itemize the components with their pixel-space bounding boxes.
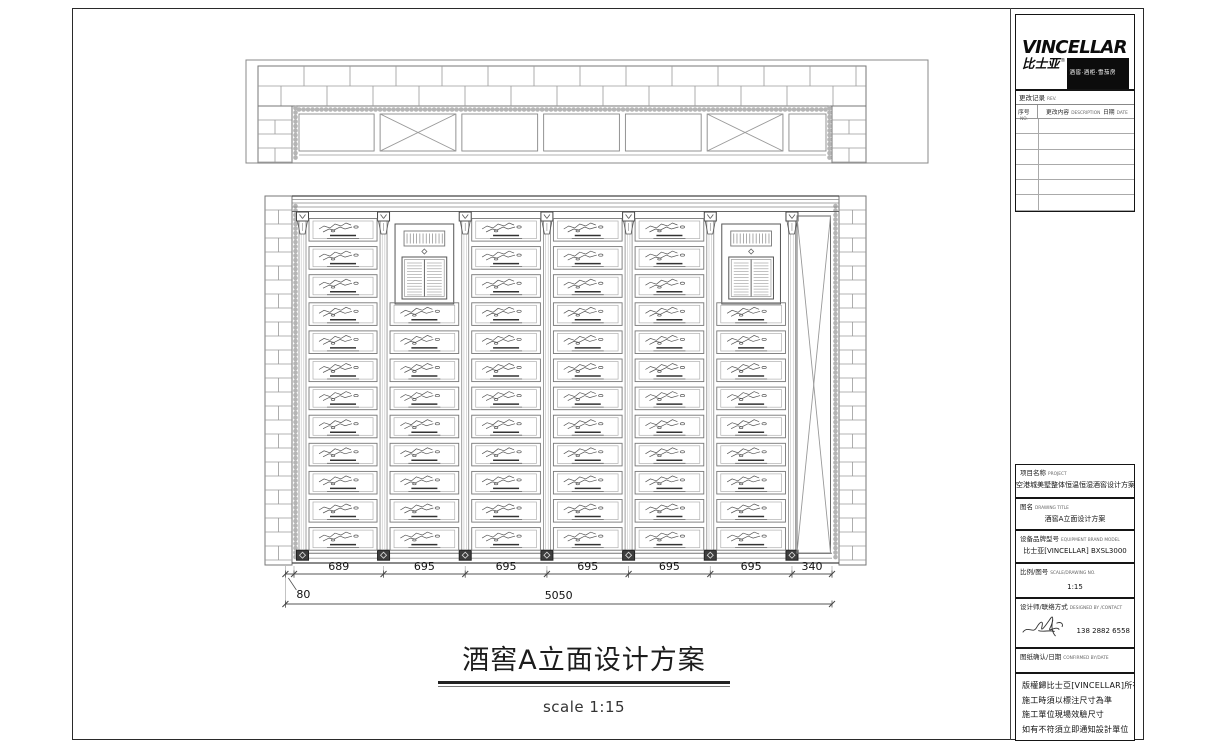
revision-col-description: 更改内容DESCRIPTION: [1038, 105, 1101, 118]
project-value: 空港城美墅整体恒温恒湿酒窖设计方案: [1016, 480, 1134, 490]
designer-box: 设计师/联络方式DESIGNED BY /CONTACT 138 2882 65…: [1015, 598, 1135, 648]
revision-empty-rows: [1016, 119, 1134, 211]
title-underline-thick: [438, 681, 730, 684]
scale-box: 比例/图号SCALE/DRAWING NO. 1:15: [1015, 563, 1135, 598]
revision-divider: [1038, 119, 1039, 211]
drawing-scale-text: scale 1:15: [438, 698, 730, 716]
designer-label: 设计师/联络方式DESIGNED BY /CONTACT: [1016, 599, 1134, 611]
project-label: 项目名称PROJECT: [1016, 465, 1134, 477]
brand-tagline-bar: 酒窖·酒柜·雪茄房 www.vincellar.com: [1067, 58, 1129, 90]
note-line: 施工時須以標注尺寸為準: [1022, 694, 1128, 709]
revision-row: [1016, 150, 1134, 165]
drawing-name-value: 酒窖A立面设计方案: [1016, 514, 1134, 524]
page-border: [72, 8, 1144, 740]
designer-signature: [1020, 611, 1077, 641]
scale-label: 比例/图号SCALE/DRAWING NO.: [1016, 564, 1134, 576]
equipment-value: 比士亚[VINCELLAR] BXSL3000: [1016, 546, 1134, 556]
revision-col-date: 日期DATE: [1101, 105, 1134, 118]
equipment-box: 设备品牌型号EQUIPMENT BRAND MODEL 比士亚[VINCELLA…: [1015, 530, 1135, 563]
note-line: 版權歸比士亞[VINCELLAR]所有: [1022, 679, 1128, 694]
confirm-label: 图纸确认/日期CONFIRMED BY/DATE: [1016, 649, 1134, 661]
scale-value: 1:15: [1016, 583, 1134, 591]
brand-tagline: 酒窖·酒柜·雪茄房: [1070, 70, 1117, 76]
revision-row: [1016, 180, 1134, 195]
project-name-box: 项目名称PROJECT 空港城美墅整体恒温恒湿酒窖设计方案: [1015, 464, 1135, 498]
title-block: VINCELLAR 比士亚 ® 酒窖·酒柜·雪茄房 www.vincellar.…: [1010, 8, 1146, 740]
drawing-title: 酒窖A立面设计方案 scale 1:15: [438, 644, 730, 716]
logo-box: VINCELLAR 比士亚 ® 酒窖·酒柜·雪茄房 www.vincellar.…: [1015, 14, 1135, 90]
designer-phone: 138 2882 6558: [1077, 627, 1130, 635]
brand-wordmark: VINCELLAR: [1022, 39, 1129, 57]
notes-box: 版權歸比士亞[VINCELLAR]所有 施工時須以標注尺寸為準 施工單位現場效驗…: [1015, 673, 1135, 741]
revision-table: 更改记录REV. 序号NO. 更改内容DESCRIPTION 日期DATE: [1015, 90, 1135, 212]
note-line: 施工單位現場效驗尺寸: [1022, 708, 1128, 723]
drawing-title-text: 酒窖A立面设计方案: [438, 644, 730, 678]
brand-cn-name: 比士亚: [1022, 57, 1060, 71]
drawing-sheet: 689695695695695695340805050 酒窖A立面设计方案 sc…: [0, 0, 1210, 750]
registered-mark: ®: [1061, 57, 1066, 65]
revision-row: [1016, 119, 1134, 134]
title-underline-thin: [438, 686, 730, 687]
revision-row: [1016, 195, 1134, 210]
drawing-name-box: 图名DRAWING TITLE 酒窖A立面设计方案: [1015, 498, 1135, 530]
revision-col-no: 序号NO.: [1016, 105, 1038, 118]
revision-header-row: 序号NO. 更改内容DESCRIPTION 日期DATE: [1016, 105, 1134, 119]
revision-row: [1016, 165, 1134, 180]
note-line: 如有不符須立即通知設計單位: [1022, 723, 1128, 738]
revision-row: [1016, 134, 1134, 149]
revision-title: 更改记录REV.: [1016, 91, 1134, 105]
equipment-label: 设备品牌型号EQUIPMENT BRAND MODEL: [1016, 531, 1134, 543]
drawing-name-label: 图名DRAWING TITLE: [1016, 499, 1134, 511]
confirm-box: 图纸确认/日期CONFIRMED BY/DATE: [1015, 648, 1135, 673]
